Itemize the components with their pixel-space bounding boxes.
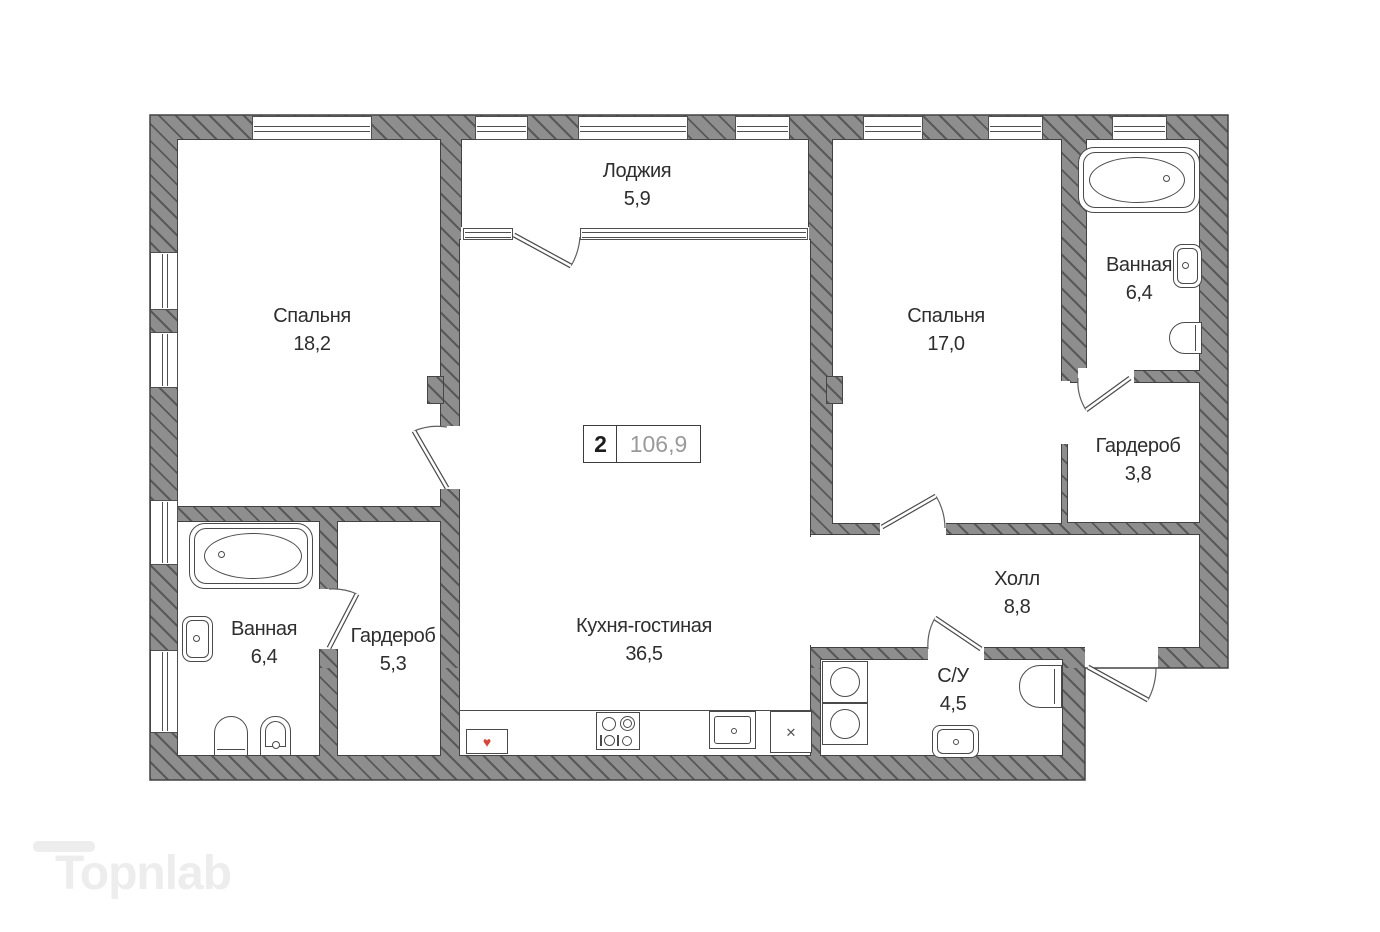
bathtub-icon <box>1078 147 1200 213</box>
entrance-door-icon <box>1088 667 1156 700</box>
floor-plan: ♥ ✕ Спальня 18,2 Лоджия 5,9 Спальня 17,0… <box>0 0 1380 932</box>
toilet-icon <box>1169 322 1202 354</box>
doorway-bathroom-right <box>1078 368 1134 384</box>
window-icon <box>863 116 923 140</box>
wall-pilaster-right <box>826 376 843 404</box>
appliance-x-icon: ✕ <box>770 711 812 753</box>
room-label-hall: Холл 8,8 <box>937 565 1097 621</box>
window-icon <box>252 116 372 140</box>
sink-icon <box>932 725 979 758</box>
doorway-bedroom-2 <box>880 521 946 536</box>
watermark-logo: Topnlab <box>55 846 231 901</box>
window-icon <box>150 500 178 565</box>
bathtub-icon <box>189 523 313 589</box>
room-label-wardrobe-left: Гардероб 5,3 <box>313 622 473 678</box>
room-label-bedroom-2: Спальня 17,0 <box>866 302 1026 358</box>
room-label-bathroom-right: Ванная 6,4 <box>1079 251 1199 307</box>
window-icon <box>150 252 178 310</box>
window-icon <box>150 650 178 733</box>
window-icon <box>1112 116 1167 140</box>
window-icon <box>988 116 1043 140</box>
doorway-bedroom-1 <box>438 426 461 489</box>
window-icon <box>463 228 513 240</box>
boiler-icon: ♥ <box>466 729 508 754</box>
room-label-bedroom-1: Спальня 18,2 <box>232 302 392 358</box>
badge-total-area: 106,9 <box>616 425 701 463</box>
washer-icon <box>822 703 868 745</box>
doorway-entrance <box>1085 645 1158 669</box>
stove-icon <box>596 712 640 750</box>
room-label-kitchen-living: Кухня-гостиная 36,5 <box>544 612 744 668</box>
room-label-wc: С/У 4,5 <box>893 662 1013 718</box>
doorway-wc <box>928 645 984 661</box>
room-label-wardrobe-right: Гардероб 3,8 <box>1078 432 1198 488</box>
window-icon <box>150 332 178 388</box>
window-icon <box>580 228 808 240</box>
wall-pilaster-left <box>427 376 444 404</box>
doorway-bedroom2-lobby <box>1059 381 1070 444</box>
kitchen-sink-icon <box>709 711 756 749</box>
badge-room-count: 2 <box>583 425 618 463</box>
room-label-loggia: Лоджия 5,9 <box>557 157 717 213</box>
window-icon <box>578 116 688 140</box>
washer-icon <box>822 661 868 703</box>
window-icon <box>475 116 528 140</box>
toilet-icon <box>214 716 248 756</box>
toilet-icon <box>1019 665 1062 708</box>
room-kitchen-living <box>459 239 811 756</box>
window-icon <box>735 116 790 140</box>
kitchen-hall-opening <box>806 537 816 645</box>
bidet-icon <box>260 716 291 756</box>
